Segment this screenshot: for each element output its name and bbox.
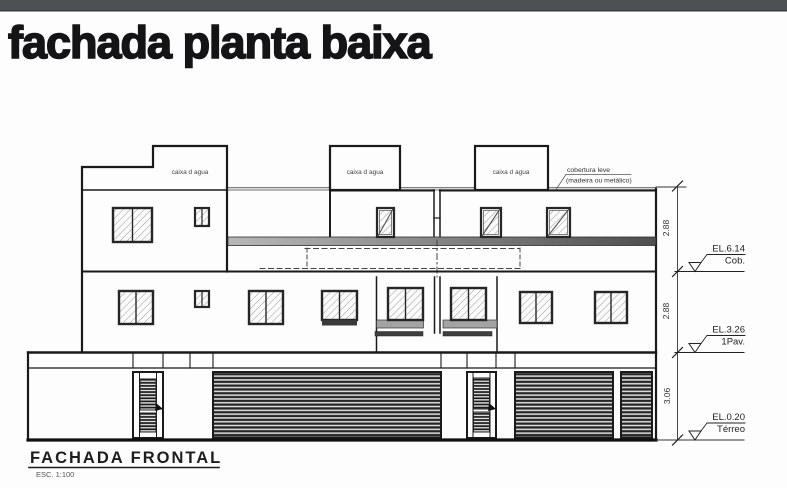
door-louver — [474, 412, 490, 432]
level-name: 1Pav. — [721, 337, 745, 348]
level-name: Cob. — [725, 256, 745, 267]
porch-door-window — [451, 288, 486, 320]
entry-door — [467, 372, 496, 438]
window-large — [119, 291, 153, 324]
roof-note-line2: (madeira ou metálico) — [566, 178, 632, 185]
page-title: fachada planta baixa — [8, 17, 433, 68]
water-tank-label: caixa d agua — [347, 169, 384, 176]
dim-pav1: 2.88 — [661, 302, 671, 319]
water-tank-left: caixa d agua — [172, 169, 209, 176]
caption-title: FACHADA FRONTAL — [30, 449, 222, 467]
porch-door-window — [388, 288, 423, 320]
window-large — [595, 292, 627, 323]
water-tank-right: caixa d agua — [475, 146, 548, 190]
door-louver — [474, 378, 490, 409]
window-small — [195, 291, 209, 307]
dim-terreo: 3.06 — [662, 387, 672, 404]
caption-scale: ESC. 1:100 — [36, 470, 74, 479]
casement-window — [377, 208, 394, 237]
casement-window — [547, 208, 570, 237]
water-tank-middle: caixa d agua — [330, 146, 400, 190]
door-louver — [140, 379, 156, 410]
top-bar — [0, 0, 787, 12]
window-small — [195, 208, 209, 226]
water-tank-label: caixa d agua — [493, 169, 530, 176]
garage-door — [213, 372, 441, 438]
casement-window — [481, 208, 501, 237]
screenshot-page: fachada planta baixa caixa d agua caixa … — [0, 0, 787, 488]
water-tank-label: caixa d agua — [172, 169, 209, 176]
louver-panel — [621, 372, 652, 438]
level-elevation: EL.3.26 — [712, 325, 745, 336]
door-louver — [140, 413, 156, 432]
left-tower — [82, 146, 227, 352]
window-large — [113, 208, 152, 242]
garage-door — [515, 372, 613, 438]
facade-drawing: fachada planta baixa caixa d agua caixa … — [0, 0, 787, 488]
cob-slab-band — [228, 237, 656, 246]
porch-sill — [443, 320, 497, 328]
window-large — [322, 291, 357, 326]
level-elevation: EL.0.20 — [712, 412, 745, 423]
level-elevation: EL.6.14 — [712, 244, 745, 255]
window-large — [520, 292, 552, 323]
window-sill — [322, 320, 357, 326]
entry-door — [133, 372, 163, 438]
porch-sill — [377, 320, 424, 328]
window-large — [249, 291, 283, 324]
level-name: Térreo — [717, 424, 745, 435]
dim-cob: 2.88 — [661, 219, 671, 236]
porch-rail — [443, 332, 492, 337]
roof-note-line1: cobertura leve — [567, 167, 610, 174]
porch-rail — [375, 332, 423, 337]
